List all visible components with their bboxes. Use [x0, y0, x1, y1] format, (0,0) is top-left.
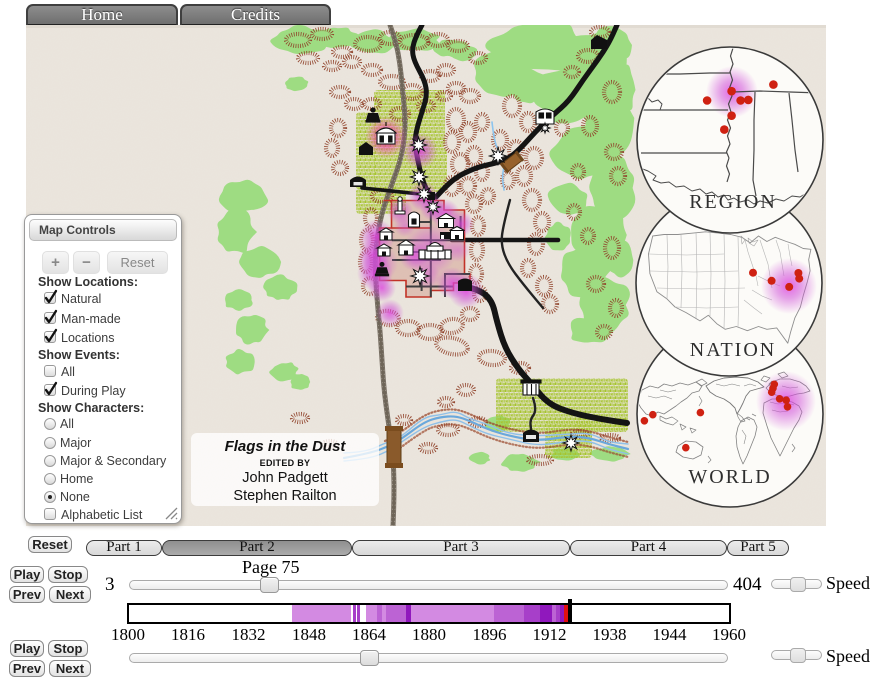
svg-text:NATION: NATION: [690, 339, 776, 361]
svg-text:REGION: REGION: [689, 191, 777, 213]
svg-text:WORLD: WORLD: [688, 466, 771, 488]
